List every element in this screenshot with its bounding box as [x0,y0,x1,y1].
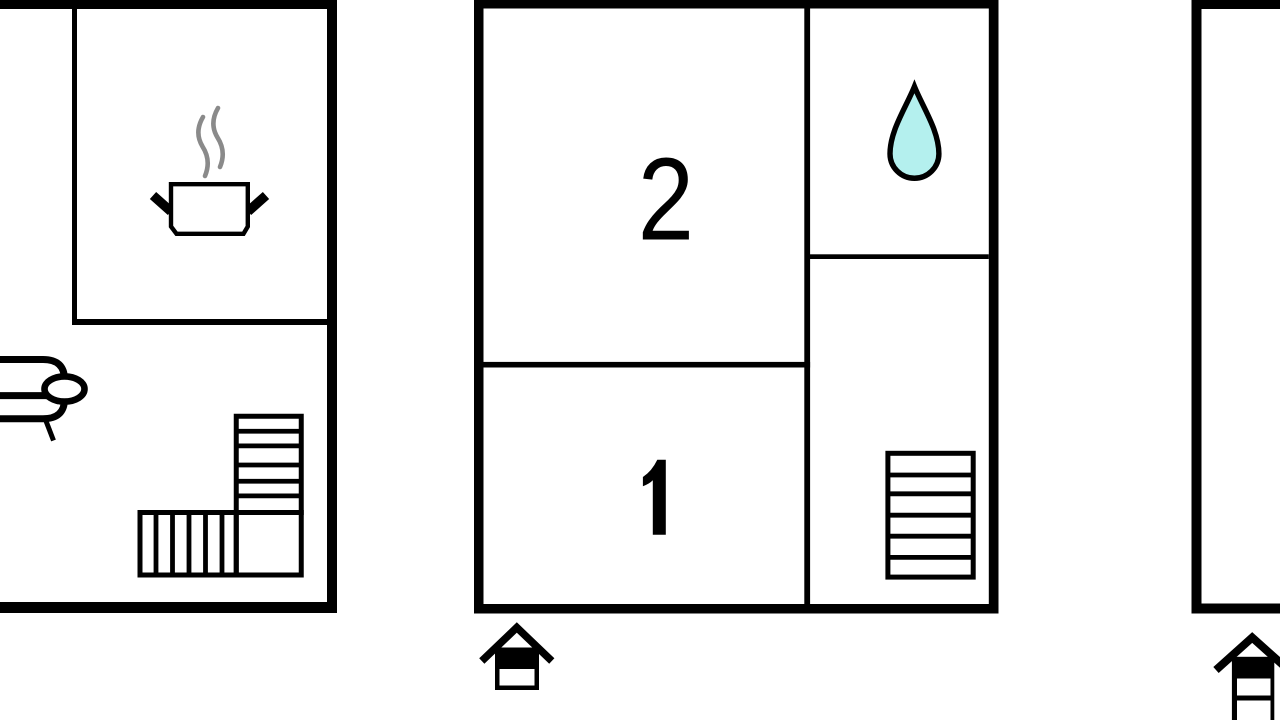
svg-text:2: 2 [638,135,694,266]
